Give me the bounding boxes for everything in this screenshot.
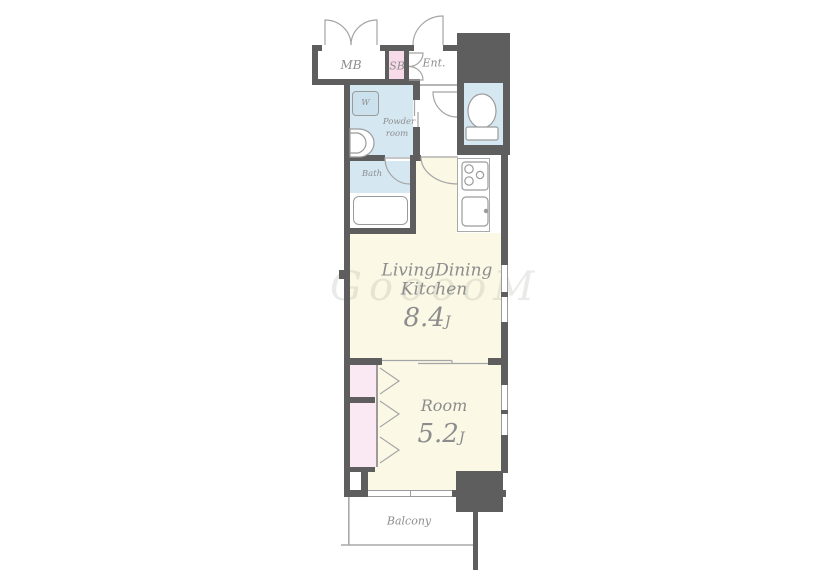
label-ldk-size-unit: J [445, 314, 451, 330]
stove-burner [465, 177, 473, 185]
label-sb: SB [389, 61, 405, 72]
label-ldk-size: 8.4J [403, 305, 450, 331]
label-room-size-unit: J [459, 430, 465, 446]
door-arc-sb-bottom [409, 67, 423, 81]
label-powder-room-2: room [386, 130, 408, 139]
label-entrance: Ent. [422, 58, 445, 69]
toilet-tank [466, 127, 498, 140]
folding-door-icon [380, 437, 399, 463]
faucet-dot [484, 209, 487, 212]
label-ldk-2: Kitchen [401, 282, 467, 299]
door-arc-sb-top [409, 53, 423, 67]
label-washer: W [361, 99, 369, 107]
stove-burner [476, 171, 483, 178]
door-arc-bath [385, 158, 410, 184]
folding-door-icon [380, 368, 399, 394]
door-arc-ldk [421, 157, 458, 184]
door-arc-mb-right [351, 20, 377, 45]
label-balcony: Balcony [387, 516, 431, 527]
label-mb: MB [340, 59, 361, 71]
label-bath: Bath [362, 170, 382, 179]
label-powder-room-1: Powder [383, 118, 415, 127]
door-arc-corridor [433, 92, 457, 117]
stove-burner [465, 165, 473, 173]
door-arc-entrance [413, 16, 443, 45]
folding-door-icon [380, 401, 399, 427]
label-room-size: 5.2J [417, 421, 464, 447]
floor-plan: GooooM [0, 0, 819, 579]
label-room: Room [421, 398, 467, 414]
door-arc-mb-left [325, 20, 351, 45]
toilet-icon [468, 94, 496, 128]
sliding-door-icon-partition [382, 361, 488, 364]
label-ldk-1: LivingDining [382, 263, 493, 280]
